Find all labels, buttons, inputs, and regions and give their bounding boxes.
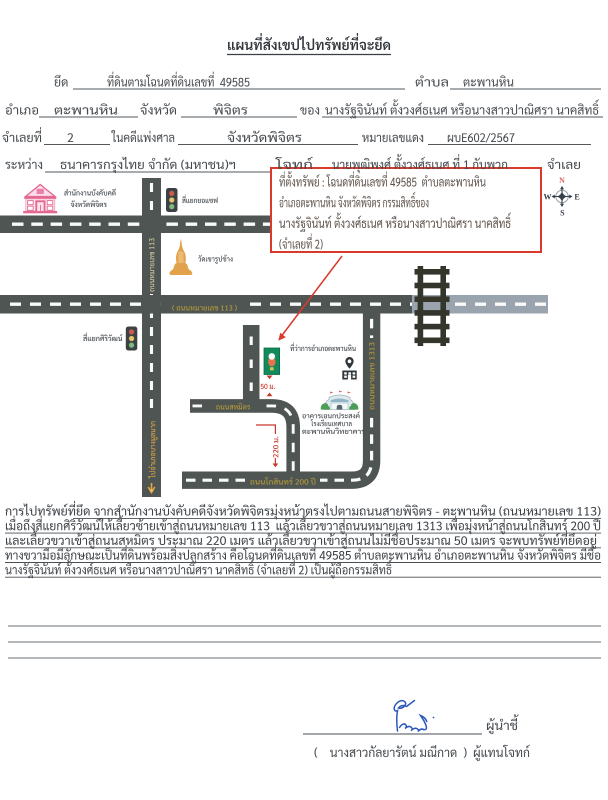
svg-text:S: S (560, 209, 565, 218)
svg-text:W: W (544, 193, 552, 202)
svg-text:N: N (559, 176, 565, 185)
svg-text:E: E (574, 193, 579, 202)
